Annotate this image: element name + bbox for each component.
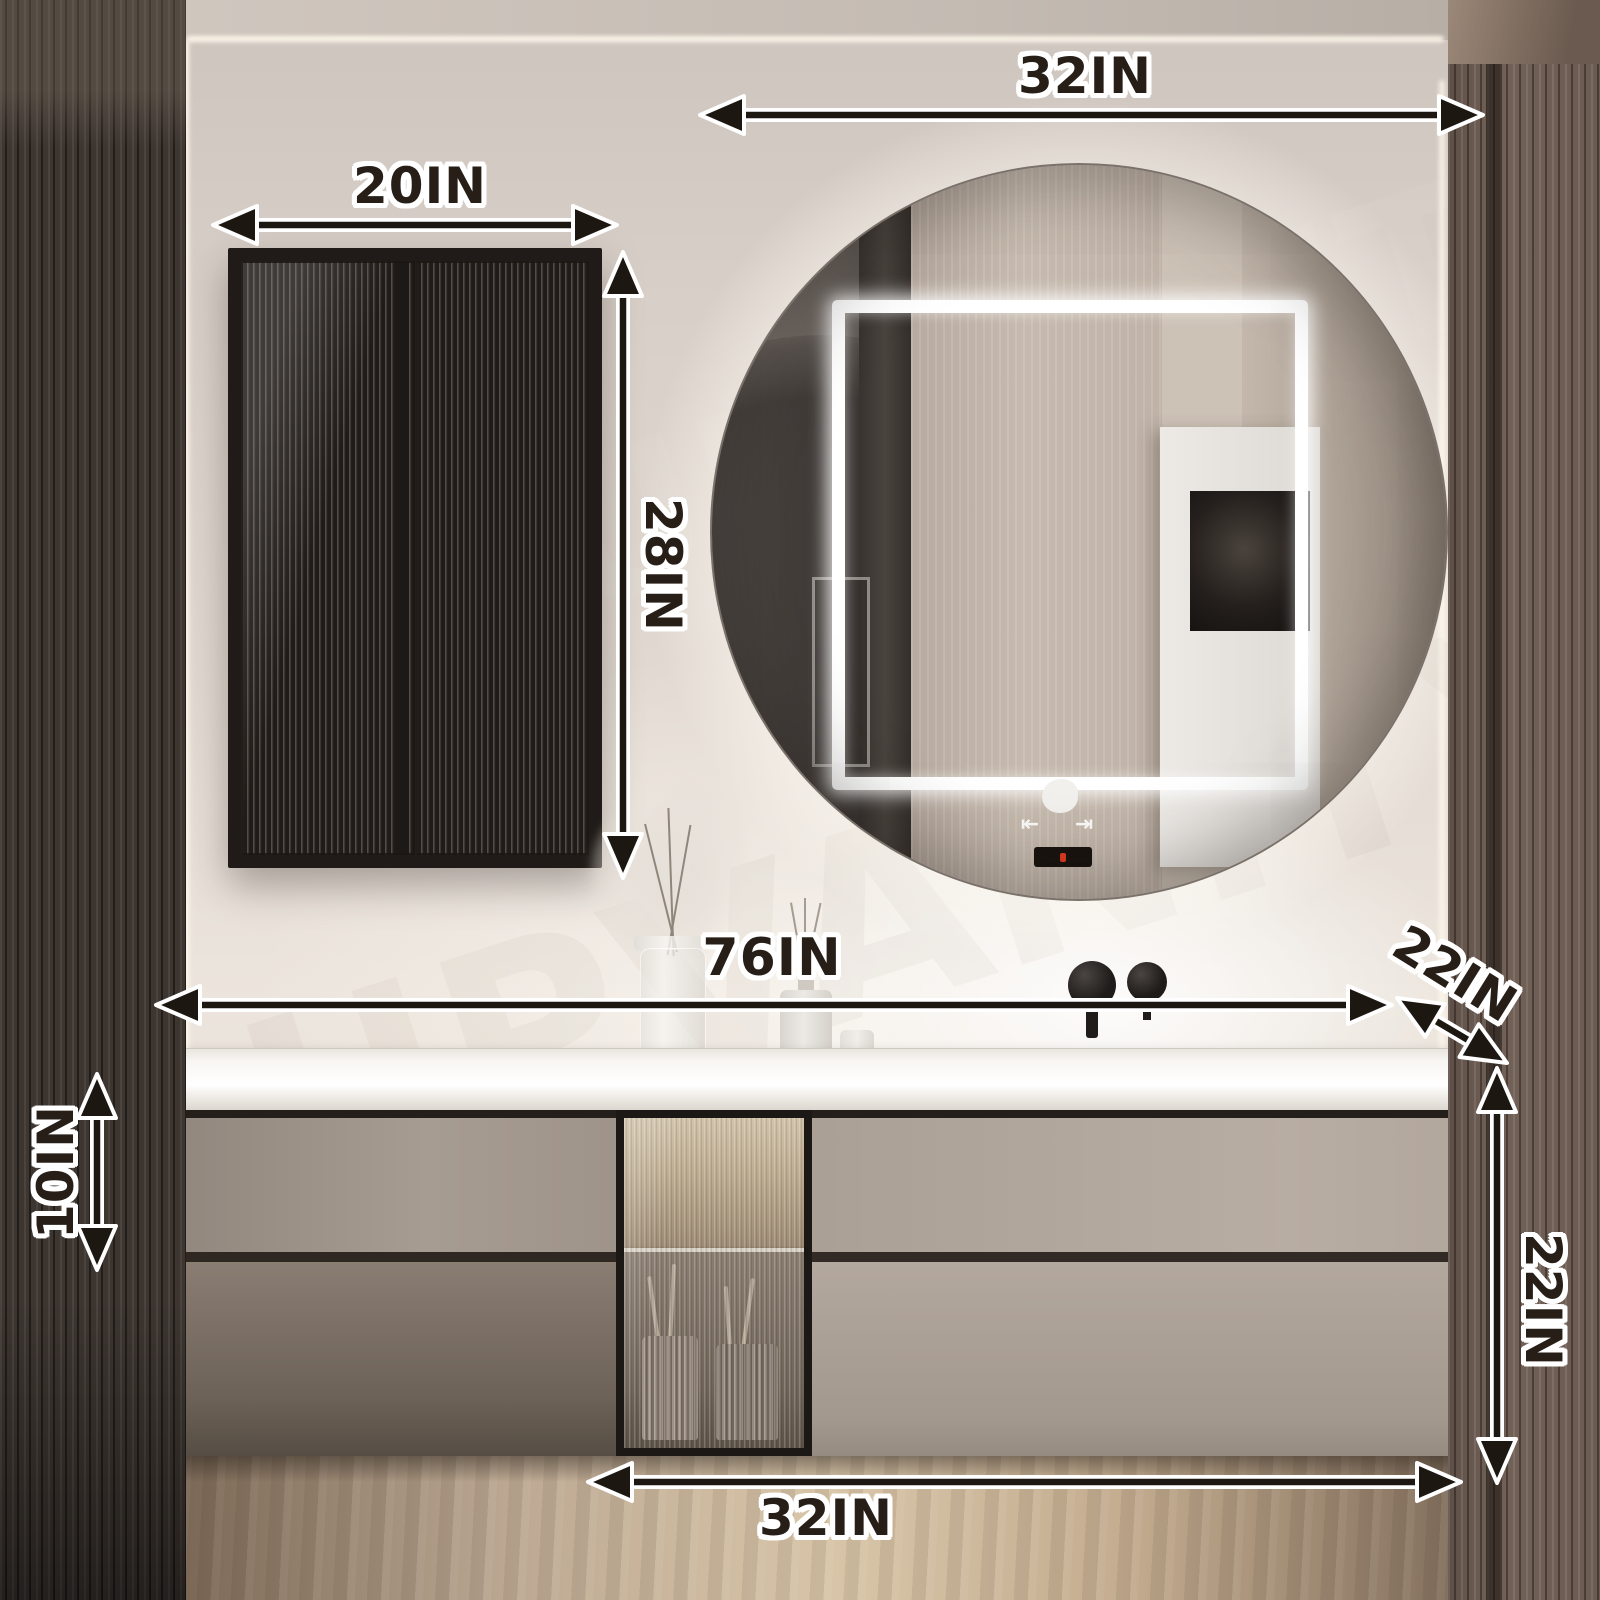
wall-faucet-spout[interactable] (1068, 961, 1116, 1009)
wall-faucet-handle[interactable] (1127, 962, 1167, 1002)
drawer-divider (140, 1252, 616, 1262)
cabinet-glass-door[interactable] (415, 261, 589, 855)
counter-shadow-gap (140, 1110, 1492, 1118)
scene: UPVANITY UPVANITY ⇤ ⇥ (0, 0, 1600, 1600)
vanity-drawer[interactable] (812, 1262, 1492, 1456)
vanity-countertop (126, 1048, 1494, 1110)
panel-groove (1486, 0, 1502, 1600)
round-led-mirror: ⇤ ⇥ (710, 163, 1448, 901)
dim-label-vanity-height: 22IN (1518, 1233, 1568, 1367)
dim-label-mirror-width: 32IN (1018, 51, 1152, 101)
cabinet-glass-door[interactable] (241, 261, 415, 855)
wall-faucet-handle (1143, 1000, 1151, 1020)
dim-label-cabinet-height: 28IN (638, 498, 688, 632)
fluted-glass-overlay (624, 1118, 804, 1448)
dim-label-counter-height: 10IN (31, 1105, 81, 1239)
vanity-drawer[interactable] (812, 1118, 1492, 1252)
ceiling (0, 0, 1600, 40)
mirror-rim-shading (712, 165, 1446, 899)
glass-cabinet-interior (624, 1118, 804, 1448)
floating-vanity-cabinet (140, 1110, 1492, 1456)
dim-label-right-section-width: 32IN (759, 1493, 893, 1543)
vanity-glass-cabinet[interactable] (616, 1110, 812, 1456)
dim-label-cabinet-width: 20IN (353, 161, 487, 211)
wall-faucet-spout (1086, 1006, 1098, 1038)
vanity-drawer[interactable] (140, 1262, 616, 1456)
led-cove-top (186, 36, 1444, 42)
vanity-drawer[interactable] (140, 1118, 616, 1252)
dim-label-vanity-width: 76IN (702, 932, 841, 984)
panel-shadow (0, 1300, 186, 1600)
wall-storage-cabinet (228, 248, 602, 868)
vanity-floor-shadow (120, 1452, 1506, 1482)
panel-top-cap (1448, 0, 1600, 64)
drawer-divider (812, 1252, 1492, 1262)
